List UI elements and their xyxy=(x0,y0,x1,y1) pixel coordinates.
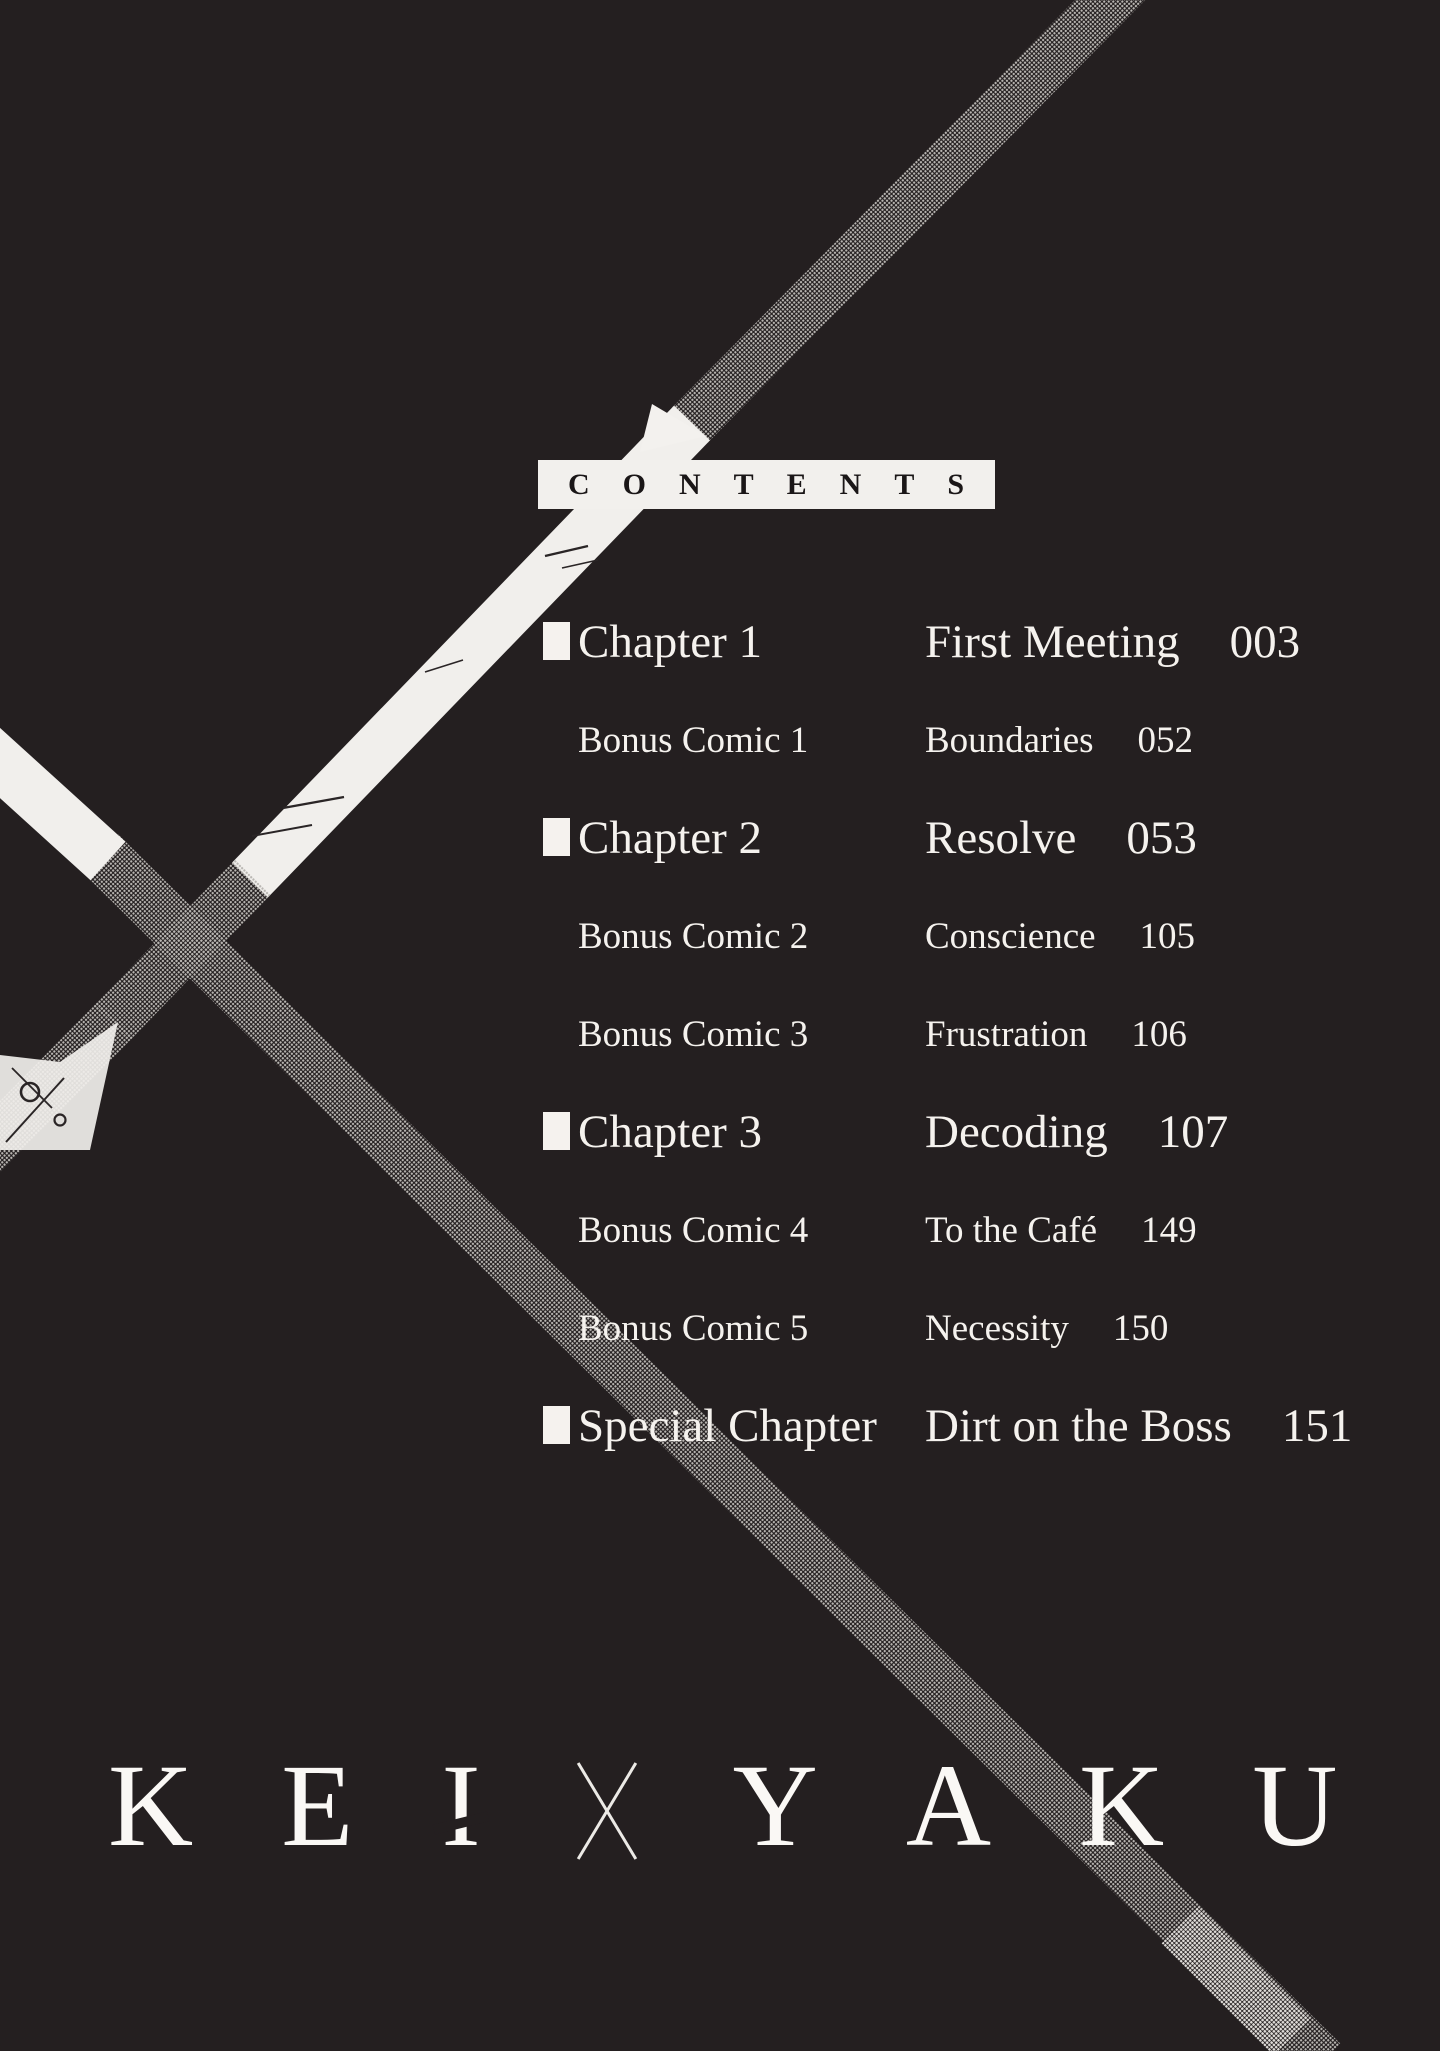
bonus-title: Conscience xyxy=(925,915,1096,958)
page-number: 151 xyxy=(1282,1399,1353,1453)
strip-a-white-head xyxy=(0,743,108,861)
logo-letter-k1: K xyxy=(108,1747,193,1865)
logo-letter-e: E xyxy=(281,1747,353,1865)
toc-row-bonus-4: Bonus Comic 4 To the Café149 xyxy=(543,1181,1403,1279)
page-number: 052 xyxy=(1138,719,1194,762)
bonus-title: To the Café xyxy=(925,1209,1097,1252)
strip-b-gray-top xyxy=(690,0,1130,425)
bonus-title: Necessity xyxy=(925,1307,1069,1350)
chapter-bullet-icon xyxy=(543,1112,570,1150)
chapter-label: Special Chapter xyxy=(578,1399,925,1453)
page-number: 149 xyxy=(1141,1209,1197,1252)
page-number: 053 xyxy=(1126,811,1197,865)
toc-row-bonus-2: Bonus Comic 2 Conscience105 xyxy=(543,887,1403,985)
chapter-title: First Meeting xyxy=(925,615,1180,669)
multiply-cross-icon xyxy=(569,1761,645,1861)
chapter-bullet-icon xyxy=(543,818,570,856)
chapter-title: Resolve xyxy=(925,811,1076,865)
chapter-bullet-icon xyxy=(543,622,570,660)
bonus-title: Frustration xyxy=(925,1013,1087,1056)
table-of-contents: Chapter 1 First Meeting003 Bonus Comic 1… xyxy=(543,593,1403,1475)
chapter-title: Dirt on the Boss xyxy=(925,1399,1232,1453)
series-logo: K E I Y A K U xyxy=(108,1747,1337,1865)
logo-letter-a: A xyxy=(906,1747,991,1865)
toc-row-special-chapter: Special Chapter Dirt on the Boss151 xyxy=(543,1377,1403,1475)
page-number: 107 xyxy=(1158,1105,1229,1159)
chapter-label: Chapter 3 xyxy=(578,1105,925,1159)
chapter-bullet-icon xyxy=(543,1406,570,1444)
bonus-label: Bonus Comic 4 xyxy=(578,1209,925,1252)
contents-header: CONTENTS xyxy=(538,460,995,509)
bonus-label: Bonus Comic 5 xyxy=(578,1307,925,1350)
bonus-label: Bonus Comic 1 xyxy=(578,719,925,762)
chapter-label: Chapter 1 xyxy=(578,615,925,669)
bonus-title: Boundaries xyxy=(925,719,1094,762)
page-number: 105 xyxy=(1140,915,1196,958)
logo-letter-i: I xyxy=(441,1747,480,1865)
logo-letter-k2: K xyxy=(1079,1747,1164,1865)
chapter-label: Chapter 2 xyxy=(578,811,925,865)
toc-row-bonus-5: Bonus Comic 5 Necessity150 xyxy=(543,1279,1403,1377)
page-number: 150 xyxy=(1113,1307,1169,1350)
bonus-label: Bonus Comic 2 xyxy=(578,915,925,958)
toc-row-chapter-1: Chapter 1 First Meeting003 xyxy=(543,593,1403,691)
toc-row-chapter-2: Chapter 2 Resolve053 xyxy=(543,789,1403,887)
logo-letter-y: Y xyxy=(733,1747,818,1865)
toc-row-bonus-3: Bonus Comic 3 Frustration106 xyxy=(543,985,1403,1083)
toc-row-chapter-3: Chapter 3 Decoding107 xyxy=(543,1083,1403,1181)
page-number: 106 xyxy=(1131,1013,1187,1056)
toc-row-bonus-1: Bonus Comic 1 Boundaries052 xyxy=(543,691,1403,789)
chapter-title: Decoding xyxy=(925,1105,1108,1159)
toc-page: { "page": { "bg_color": "#241f20", "text… xyxy=(0,0,1440,2051)
page-number: 003 xyxy=(1230,615,1301,669)
contents-title: CONTENTS xyxy=(538,468,997,502)
logo-letter-i-text: I xyxy=(441,1740,480,1871)
bonus-label: Bonus Comic 3 xyxy=(578,1013,925,1056)
logo-letter-u: U xyxy=(1252,1747,1337,1865)
